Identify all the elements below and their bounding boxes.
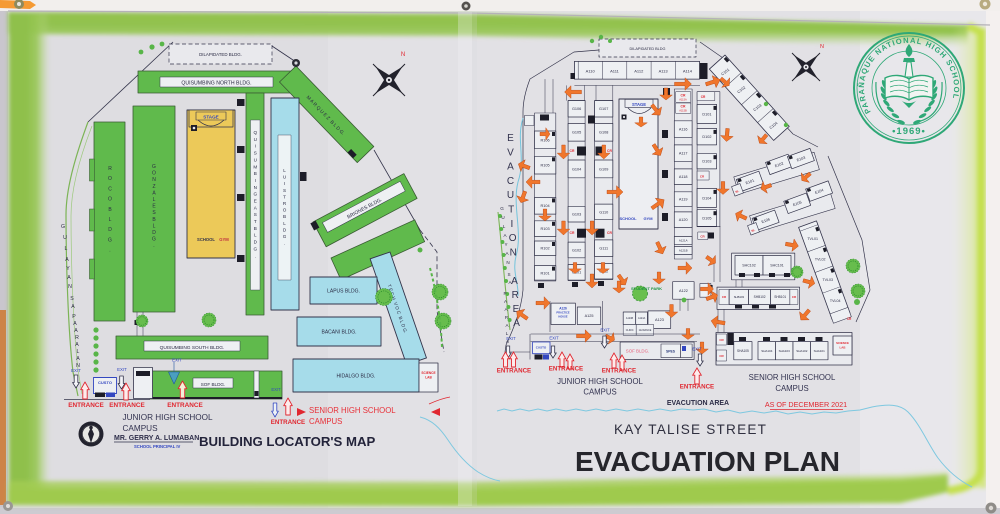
- svg-text:N: N: [401, 52, 405, 58]
- svg-text:N: N: [820, 44, 824, 50]
- svg-text:C: C: [507, 176, 514, 187]
- svg-text:U: U: [501, 215, 504, 220]
- svg-text:SHB101: SHB101: [774, 295, 786, 299]
- svg-text:A120: A120: [679, 218, 688, 222]
- svg-text:LAPUS BLDG.: LAPUS BLDG.: [327, 289, 360, 295]
- svg-text:DILAPIDATED BLDG.: DILAPIDATED BLDG.: [199, 52, 242, 57]
- svg-text:G107: G107: [599, 107, 608, 111]
- svg-text:ENTRANCE: ENTRANCE: [167, 402, 203, 409]
- svg-text:SHA103: SHA103: [779, 349, 791, 353]
- svg-text:G110: G110: [599, 210, 608, 214]
- svg-text:A115A: A115A: [679, 98, 687, 102]
- svg-text:A: A: [511, 276, 518, 287]
- svg-text:N: N: [68, 284, 72, 290]
- svg-text:EVACUATION PLAN: EVACUATION PLAN: [575, 446, 840, 477]
- svg-text:SENIOR HIGH SCHOOL: SENIOR HIGH SCHOOL: [309, 406, 396, 415]
- svg-text:EXIT: EXIT: [117, 367, 127, 372]
- svg-text:G104: G104: [572, 167, 581, 171]
- svg-text:O: O: [509, 233, 517, 244]
- svg-text:SHA104: SHA104: [761, 349, 773, 353]
- svg-text:CUSTO: CUSTO: [536, 346, 547, 350]
- svg-text:ENTRANCE: ENTRANCE: [68, 402, 104, 409]
- svg-text:A124A: A124A: [638, 317, 646, 320]
- svg-text:JUNIOR HIGH SCHOOL: JUNIOR HIGH SCHOOL: [123, 413, 214, 422]
- svg-text:D101: D101: [702, 112, 711, 116]
- svg-text:G109: G109: [599, 167, 608, 171]
- svg-text:GYM: GYM: [643, 216, 653, 221]
- svg-text:ENTRANCE: ENTRANCE: [497, 368, 531, 375]
- svg-text:A: A: [74, 328, 78, 334]
- svg-text:D104: D104: [702, 196, 711, 200]
- svg-text:Y: Y: [504, 242, 507, 247]
- svg-text:SCHOOL: SCHOOL: [619, 216, 637, 221]
- svg-text:A113: A113: [659, 69, 669, 74]
- svg-text:DILAPIDATED BLDG: DILAPIDATED BLDG: [629, 47, 665, 51]
- svg-text:CLINIC: CLINIC: [626, 329, 634, 332]
- svg-text:T: T: [508, 205, 514, 216]
- svg-text:SHB103: SHB103: [734, 295, 745, 299]
- svg-text:A: A: [513, 318, 520, 329]
- svg-text:P: P: [72, 314, 76, 320]
- svg-text:SENIOR HIGH SCHOOL: SENIOR HIGH SCHOOL: [749, 373, 836, 382]
- svg-text:A: A: [65, 257, 69, 263]
- svg-text:HIDALGO BLDG.: HIDALGO BLDG.: [337, 374, 376, 380]
- svg-text:R101: R101: [541, 271, 550, 275]
- svg-text:A: A: [76, 356, 80, 362]
- svg-text:SHA105: SHA105: [737, 349, 749, 353]
- svg-text:A110: A110: [586, 69, 596, 74]
- svg-text:E: E: [507, 133, 514, 144]
- svg-text:L: L: [65, 246, 68, 252]
- svg-text:D105: D105: [702, 217, 711, 221]
- svg-text:BUILDING LOCATOR'S MAP: BUILDING LOCATOR'S MAP: [199, 434, 375, 449]
- svg-text:A117: A117: [679, 152, 688, 156]
- svg-text:CR: CR: [570, 231, 575, 235]
- svg-text:SHA101: SHA101: [814, 349, 826, 353]
- svg-text:EXIT: EXIT: [172, 358, 182, 363]
- svg-text:LAB: LAB: [840, 346, 846, 350]
- svg-text:A: A: [75, 342, 79, 348]
- svg-text:A115B: A115B: [679, 109, 687, 113]
- svg-text:STAGE: STAGE: [203, 114, 218, 119]
- svg-text:SCHOOL: SCHOOL: [197, 237, 215, 242]
- svg-text:R104: R104: [541, 204, 550, 208]
- svg-text:V: V: [507, 147, 514, 158]
- svg-text:TVL01: TVL01: [807, 237, 818, 241]
- svg-text:R105: R105: [541, 164, 550, 168]
- svg-text:GUIDANCE: GUIDANCE: [639, 329, 652, 332]
- svg-text:Y: Y: [66, 266, 70, 272]
- svg-text:A119: A119: [679, 198, 688, 202]
- svg-text:STUDENT PARK: STUDENT PARK: [631, 286, 662, 291]
- svg-text:SHC102: SHC102: [742, 264, 756, 268]
- svg-text:MR. GERRY A. LUMABAN: MR. GERRY A. LUMABAN: [114, 435, 199, 442]
- svg-text:JUNIOR HIGH SCHOOL: JUNIOR HIGH SCHOOL: [557, 377, 643, 386]
- svg-text:A123: A123: [655, 318, 664, 322]
- svg-text:CUSTO: CUSTO: [98, 380, 112, 385]
- svg-text:G102: G102: [572, 248, 581, 252]
- svg-text:L: L: [503, 224, 506, 229]
- svg-text:R: R: [75, 335, 79, 341]
- svg-text:A: A: [507, 162, 514, 173]
- svg-text:U: U: [507, 190, 514, 201]
- svg-text:SCIENCE: SCIENCE: [836, 341, 849, 345]
- svg-text:S: S: [70, 296, 74, 302]
- svg-text:G103: G103: [572, 213, 581, 217]
- svg-text:G106: G106: [572, 107, 581, 111]
- svg-text:A126: A126: [559, 307, 567, 311]
- svg-text:G111: G111: [599, 247, 608, 251]
- svg-text:TVL04: TVL04: [830, 299, 841, 303]
- svg-text:CR: CR: [681, 94, 686, 98]
- svg-text:QUISUMBING SOUTH BLDG.: QUISUMBING SOUTH BLDG.: [160, 345, 225, 351]
- svg-text:EXIT: EXIT: [692, 347, 702, 352]
- svg-text:G: G: [61, 224, 65, 230]
- svg-text:N: N: [510, 247, 517, 258]
- svg-text:EXIT: EXIT: [71, 368, 81, 373]
- svg-text:AS OF DECEMBER 2021: AS OF DECEMBER 2021: [765, 400, 847, 409]
- svg-text:ENTRANCE: ENTRANCE: [602, 368, 636, 375]
- svg-text:D103: D103: [702, 160, 711, 164]
- svg-text:A125: A125: [585, 314, 594, 318]
- svg-text:CR: CR: [701, 95, 706, 99]
- svg-text:A122: A122: [679, 289, 688, 293]
- svg-text:ENTRANCE: ENTRANCE: [549, 366, 583, 373]
- svg-text:R: R: [512, 290, 519, 301]
- svg-text:SOF BLDG.: SOF BLDG.: [626, 349, 649, 354]
- svg-text:TVL03: TVL03: [822, 278, 833, 282]
- svg-text:ENTRANCE: ENTRANCE: [109, 402, 145, 409]
- svg-text:TVL02: TVL02: [815, 257, 826, 261]
- svg-text:EVACUTION AREA: EVACUTION AREA: [667, 400, 729, 407]
- svg-text:CAMPUS: CAMPUS: [775, 384, 808, 393]
- svg-text:A: A: [71, 304, 75, 310]
- svg-text:LAB: LAB: [425, 376, 432, 380]
- svg-text:A: A: [67, 275, 71, 281]
- svg-text:A118: A118: [679, 175, 688, 179]
- svg-text:CR: CR: [681, 105, 686, 109]
- svg-text:P: P: [503, 291, 506, 296]
- svg-text:A121B: A121B: [679, 249, 688, 253]
- svg-text:SHC101: SHC101: [770, 264, 784, 268]
- svg-text:G108: G108: [599, 131, 608, 135]
- svg-text:CAMPUS: CAMPUS: [583, 388, 616, 397]
- svg-text:SCIENCE: SCIENCE: [421, 371, 435, 375]
- svg-text:I: I: [511, 219, 514, 230]
- svg-text:A111: A111: [610, 69, 620, 74]
- svg-text:S: S: [507, 272, 510, 277]
- svg-text:CAMPUS: CAMPUS: [309, 417, 342, 426]
- svg-text:EXIT: EXIT: [600, 328, 610, 333]
- svg-text:D102: D102: [702, 135, 711, 139]
- svg-text:PRACTICE: PRACTICE: [556, 311, 570, 315]
- svg-text:U: U: [63, 235, 67, 241]
- svg-text:SOF BLDG.: SOF BLDG.: [201, 382, 226, 387]
- svg-text:A121A: A121A: [679, 239, 688, 243]
- svg-text:CAMPUS: CAMPUS: [123, 424, 159, 433]
- svg-text:HOUSE: HOUSE: [558, 315, 567, 319]
- svg-text:ENTRANCE: ENTRANCE: [680, 384, 714, 391]
- svg-text:G: G: [500, 206, 504, 211]
- svg-text:CR: CR: [607, 149, 612, 153]
- svg-text:SHA102: SHA102: [796, 349, 808, 353]
- svg-text:CR: CR: [607, 231, 612, 235]
- svg-text:KAY TALISE STREET: KAY TALISE STREET: [614, 422, 767, 437]
- svg-text:GYM: GYM: [219, 237, 229, 242]
- svg-text:QUISUMBING NORTH BLDG.: QUISUMBING NORTH BLDG.: [181, 81, 251, 87]
- svg-text:R106: R106: [541, 138, 550, 142]
- svg-text:N: N: [506, 260, 509, 265]
- svg-text:A116: A116: [679, 128, 688, 132]
- svg-text:L: L: [77, 349, 80, 355]
- svg-text:A114: A114: [683, 69, 693, 74]
- svg-text:EXIT: EXIT: [549, 336, 559, 341]
- svg-text:STAGE: STAGE: [632, 102, 646, 107]
- svg-text:CR: CR: [847, 317, 852, 321]
- svg-text:SCHOOL PRINCIPAL IV: SCHOOL PRINCIPAL IV: [134, 444, 181, 449]
- svg-text:CR: CR: [570, 149, 575, 153]
- svg-text:SPES: SPES: [666, 350, 676, 354]
- svg-text:•1969•: •1969•: [892, 126, 926, 137]
- svg-text:A124B: A124B: [626, 317, 634, 320]
- svg-text:R103: R103: [541, 227, 550, 231]
- svg-text:G105: G105: [572, 131, 581, 135]
- svg-text:BACANI BLDG.: BACANI BLDG.: [321, 330, 356, 336]
- svg-text:SHB102: SHB102: [754, 295, 766, 299]
- svg-text:R102: R102: [541, 247, 550, 251]
- svg-text:A112: A112: [634, 69, 644, 74]
- svg-text:EXIT: EXIT: [271, 387, 281, 392]
- svg-text:EXIT: EXIT: [506, 336, 516, 341]
- svg-text:A: A: [73, 321, 77, 327]
- svg-text:ENTRANCE: ENTRANCE: [271, 419, 305, 426]
